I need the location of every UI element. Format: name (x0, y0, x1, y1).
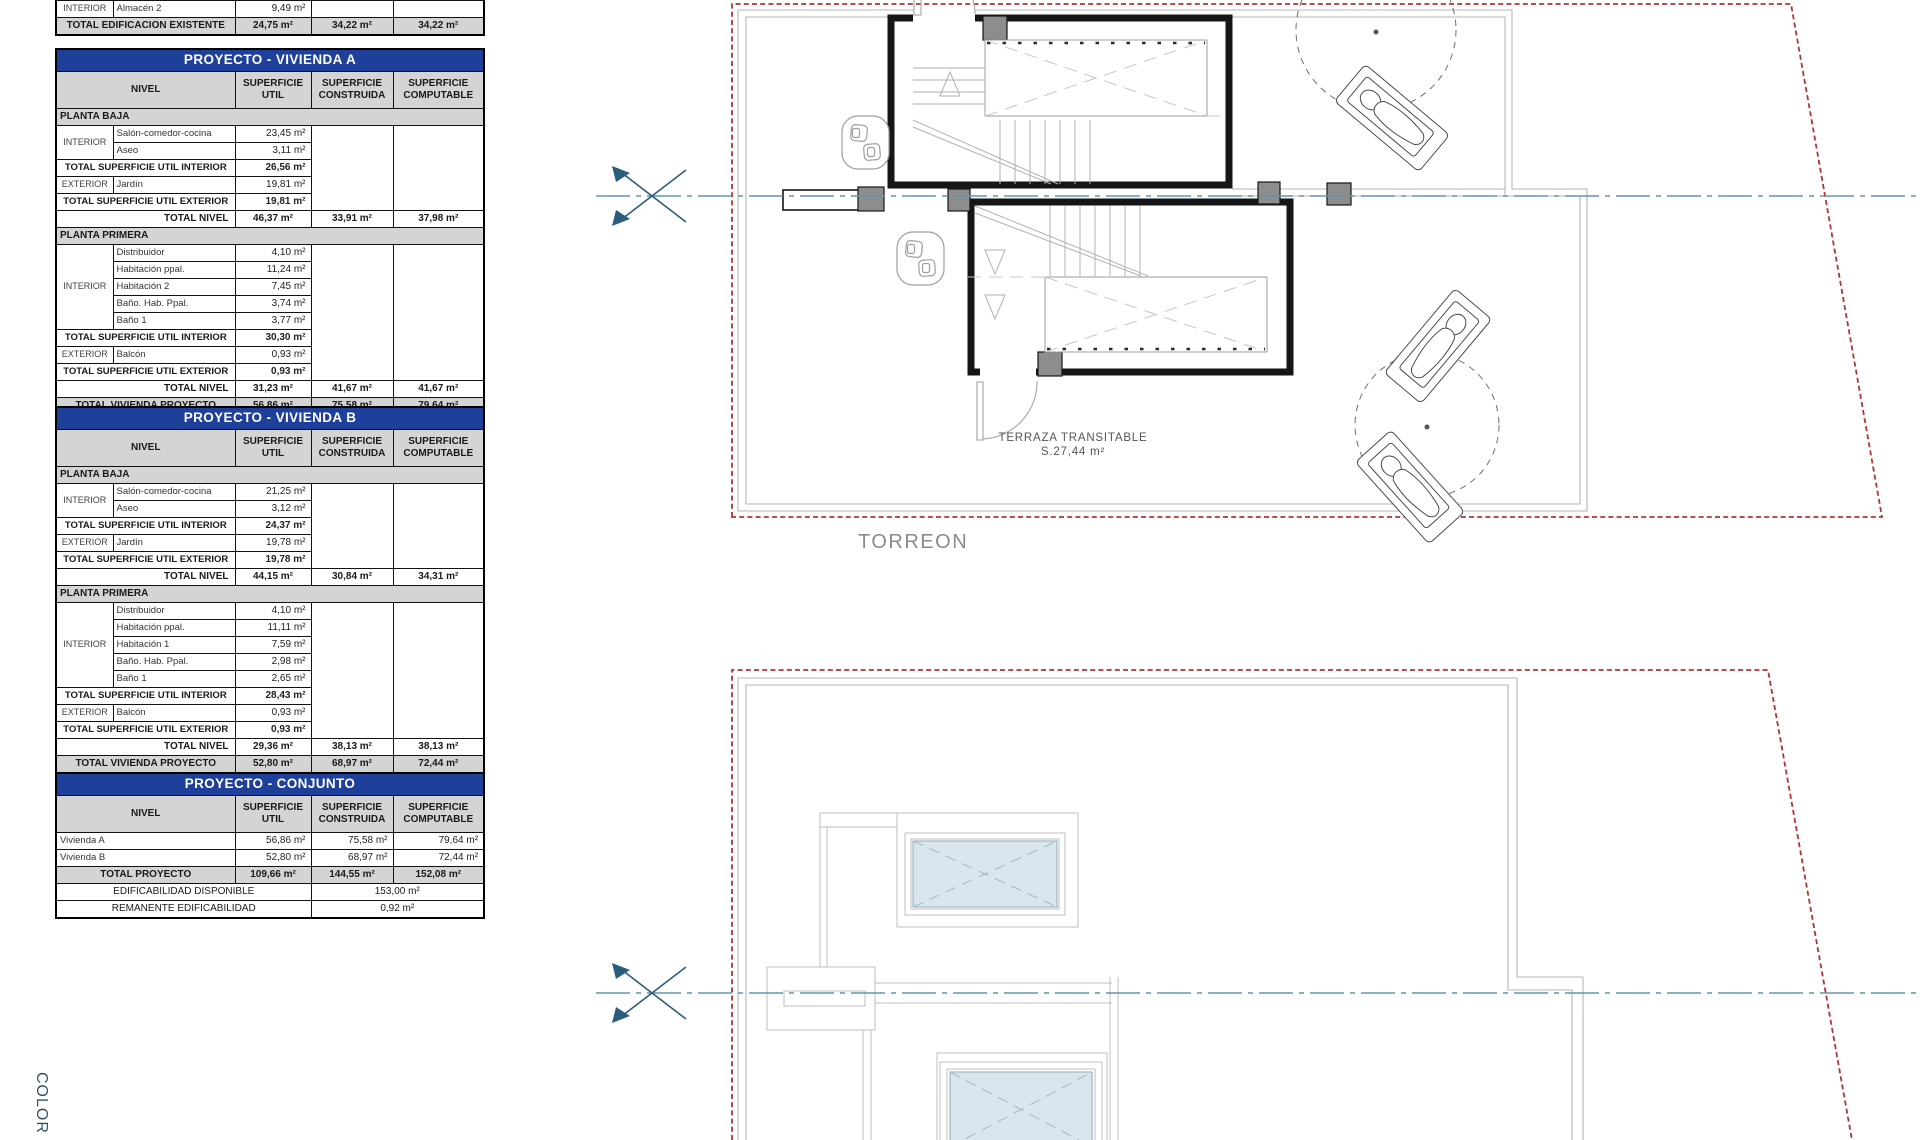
table-cell: INTERIOR (56, 1, 113, 18)
table-cell (393, 126, 484, 211)
table-cell: 30,30 m² (235, 330, 311, 347)
table-cell: TOTAL SUPERFICIE UTIL EXTERIOR (56, 194, 235, 211)
table-edificacion-existente: INTERIORAlmacén 29,49 m²TOTAL EDIFICACIO… (55, 0, 485, 36)
table-cell: Almacén 2 (113, 1, 235, 18)
terrace-label: TERRAZA TRANSITABLE (999, 432, 1148, 444)
roof-vent (842, 116, 889, 169)
pillar (858, 187, 884, 211)
table-row: INTERIORSalón-comedor-cocina23,45 m² (56, 126, 484, 143)
table-cell: 4,10 m² (235, 245, 311, 262)
terrace-border-outer (738, 678, 1583, 1140)
table-cell: NIVEL (56, 796, 235, 833)
table-cell: SUPERFICIE CONSTRUIDA (311, 430, 393, 467)
table-row: REMANENTE EDIFICABILIDAD0,92 m² (56, 901, 484, 919)
pillar (948, 189, 970, 211)
table-cell: 2,65 m² (235, 671, 311, 688)
table-cell (311, 245, 393, 381)
table-cell (311, 484, 393, 569)
margin-label: COLOR (32, 1072, 50, 1134)
table-row: INTERIORAlmacén 29,49 m² (56, 1, 484, 18)
table-cell: 152,08 m² (393, 867, 484, 884)
table-cell: Jardín (113, 535, 235, 552)
table-cell: 41,67 m² (393, 381, 484, 398)
table-cell: SUPERFICIE UTIL (235, 796, 311, 833)
table-cell: 24,37 m² (235, 518, 311, 535)
table-cell: 34,22 m² (311, 18, 393, 36)
table-row: NIVELSUPERFICIE UTILSUPERFICIE CONSTRUID… (56, 796, 484, 833)
table-cell: 11,24 m² (235, 262, 311, 279)
pillar (1327, 183, 1351, 205)
table-cell: Baño 1 (113, 313, 235, 330)
roof-vent (897, 232, 944, 285)
table-cell: SUPERFICIE UTIL (235, 430, 311, 467)
pillar (1258, 182, 1280, 204)
door-opening (980, 364, 1036, 380)
table-row: TOTAL NIVEL44,15 m²30,84 m²34,31 m² (56, 569, 484, 586)
table-proyecto-vivienda-b: PROYECTO - VIVIENDA BNIVELSUPERFICIE UTI… (55, 406, 485, 774)
table-cell (311, 603, 393, 739)
table-cell: 44,15 m² (235, 569, 311, 586)
table-cell: Distribuidor (113, 603, 235, 620)
table-row: EDIFICABILIDAD DISPONIBLE153,00 m² (56, 884, 484, 901)
table-cell: 144,55 m² (311, 867, 393, 884)
table-cell: SUPERFICIE CONSTRUIDA (311, 796, 393, 833)
table-cell: TOTAL SUPERFICIE UTIL EXTERIOR (56, 552, 235, 569)
table-row: TOTAL PROYECTO109,66 m²144,55 m²152,08 m… (56, 867, 484, 884)
table-cell: Habitación 1 (113, 637, 235, 654)
table-cell: PROYECTO - CONJUNTO (56, 773, 484, 796)
table-cell: 7,59 m² (235, 637, 311, 654)
door-opening (913, 8, 975, 24)
table-cell: 72,44 m² (393, 850, 484, 867)
table-cell: 0,92 m² (311, 901, 484, 919)
table-cell: Habitación 2 (113, 279, 235, 296)
table-cell: REMANENTE EDIFICABILIDAD (56, 901, 311, 919)
table-cell: 19,81 m² (235, 194, 311, 211)
sun-lounger (1334, 64, 1449, 171)
table-row: PLANTA BAJA (56, 467, 484, 484)
table-cell: INTERIOR (56, 484, 113, 518)
table-cell: 38,13 m² (393, 739, 484, 756)
table-cell: NIVEL (56, 430, 235, 467)
table-center-dot (1374, 30, 1379, 35)
table-cell: TOTAL NIVEL (56, 211, 235, 228)
table-cell: 33,91 m² (311, 211, 393, 228)
table-cell: 24,75 m² (235, 18, 311, 36)
table-cell: SUPERFICIE COMPUTABLE (393, 796, 484, 833)
table-cell: 72,44 m² (393, 756, 484, 774)
table-cell: Distribuidor (113, 245, 235, 262)
table-row: Vivienda B52,80 m²68,97 m²72,44 m² (56, 850, 484, 867)
table-cell: 3,12 m² (235, 501, 311, 518)
table-cell: 56,86 m² (235, 833, 311, 850)
table-cell: PLANTA PRIMERA (56, 586, 484, 603)
table-cell: 46,37 m² (235, 211, 311, 228)
table-row: PLANTA PRIMERA (56, 228, 484, 245)
table-cell: INTERIOR (56, 245, 113, 330)
table-cell: Balcón (113, 705, 235, 722)
table-cell: 34,22 m² (393, 18, 484, 36)
table-row: INTERIORDistribuidor4,10 m² (56, 245, 484, 262)
table-row: TOTAL EDIFICACION EXISTENTE24,75 m²34,22… (56, 18, 484, 36)
plot-boundary (732, 670, 1852, 1140)
table-cell: 0,93 m² (235, 364, 311, 381)
table-cell: 23,45 m² (235, 126, 311, 143)
table-proyecto-vivienda-a: PROYECTO - VIVIENDA ANIVELSUPERFICIE UTI… (55, 48, 485, 416)
table-cell: 37,98 m² (393, 211, 484, 228)
table-row: PLANTA BAJA (56, 109, 484, 126)
table-cell: SUPERFICIE COMPUTABLE (393, 72, 484, 109)
door-swing-arc (983, 381, 1037, 439)
table-cell: EDIFICABILIDAD DISPONIBLE (56, 884, 311, 901)
table-cell: 3,77 m² (235, 313, 311, 330)
plan-roof (732, 670, 1852, 1140)
table-row: PROYECTO - VIVIENDA A (56, 49, 484, 72)
table-cell (393, 484, 484, 569)
table-cell: 68,97 m² (311, 850, 393, 867)
table-cell: TOTAL VIVIENDA PROYECTO (56, 756, 235, 774)
table-cell: 4,10 m² (235, 603, 311, 620)
table-cell (393, 245, 484, 381)
skylight-hatch-a (985, 40, 1226, 116)
table-cell: Salón-comedor-cocina (113, 484, 235, 501)
table-cell: Habitación ppal. (113, 262, 235, 279)
table-cell: 28,43 m² (235, 688, 311, 705)
table-cell: Baño. Hab. Ppal. (113, 296, 235, 313)
table-cell: Vivienda B (56, 850, 235, 867)
table-cell: TOTAL EDIFICACION EXISTENTE (56, 18, 235, 36)
table-cell (311, 1, 393, 18)
table-cell: 109,66 m² (235, 867, 311, 884)
torreon-label: TORREON (858, 531, 968, 553)
table-cell: SUPERFICIE CONSTRUIDA (311, 72, 393, 109)
table-cell: TOTAL NIVEL (56, 739, 235, 756)
table-cell: Salón-comedor-cocina (113, 126, 235, 143)
table-cell: 41,67 m² (311, 381, 393, 398)
table-cell: TOTAL SUPERFICIE UTIL INTERIOR (56, 160, 235, 177)
table-cell: 52,80 m² (235, 850, 311, 867)
skylight-lower (937, 1053, 1107, 1140)
chimney (767, 967, 875, 1030)
table-cell (311, 126, 393, 211)
table-row: TOTAL NIVEL46,37 m²33,91 m²37,98 m² (56, 211, 484, 228)
sun-lounger (1384, 288, 1491, 403)
table-cell: 26,56 m² (235, 160, 311, 177)
terrace-furniture (1296, 0, 1499, 544)
drawing-sheet: TERRAZA TRANSITABLE S.27,44 m² TORREON (0, 0, 1920, 1140)
table-row: TOTAL NIVEL29,36 m²38,13 m²38,13 m² (56, 739, 484, 756)
table-cell: 153,00 m² (311, 884, 484, 901)
table-cell: EXTERIOR (56, 535, 113, 552)
table-cell: TOTAL SUPERFICIE UTIL EXTERIOR (56, 722, 235, 739)
table-cell: 34,31 m² (393, 569, 484, 586)
table-cell: TOTAL SUPERFICIE UTIL INTERIOR (56, 330, 235, 347)
table-cell: TOTAL NIVEL (56, 569, 235, 586)
skylight-upper (905, 833, 1065, 915)
table-cell: TOTAL SUPERFICIE UTIL EXTERIOR (56, 364, 235, 381)
table-cell: PROYECTO - VIVIENDA A (56, 49, 484, 72)
table-cell: SUPERFICIE UTIL (235, 72, 311, 109)
table-cell: 2,98 m² (235, 654, 311, 671)
table-cell: Balcón (113, 347, 235, 364)
table-cell: Aseo (113, 143, 235, 160)
table-cell: Aseo (113, 501, 235, 518)
table-cell: PLANTA BAJA (56, 467, 484, 484)
table-cell (393, 603, 484, 739)
table-row: TOTAL VIVIENDA PROYECTO52,80 m²68,97 m²7… (56, 756, 484, 774)
door-leaf (977, 382, 983, 440)
table-cell: PLANTA BAJA (56, 109, 484, 126)
table-cell: 3,11 m² (235, 143, 311, 160)
table-cell: 29,36 m² (235, 739, 311, 756)
table-cell: 31,23 m² (235, 381, 311, 398)
pillar (983, 16, 1007, 40)
table-cell: 21,25 m² (235, 484, 311, 501)
table-cell: 19,81 m² (235, 177, 311, 194)
table-row: PROYECTO - VIVIENDA B (56, 407, 484, 430)
table-cell: TOTAL PROYECTO (56, 867, 235, 884)
table-cell: Baño. Hab. Ppal. (113, 654, 235, 671)
table-cell: Jardín (113, 177, 235, 194)
terrace-border-inner (746, 685, 1572, 1140)
pillar (1038, 352, 1062, 376)
terrace-area-label: S.27,44 m² (1041, 446, 1105, 458)
table-cell (393, 1, 484, 18)
table-cell: 0,93 m² (235, 722, 311, 739)
table-cell: TOTAL SUPERFICIE UTIL INTERIOR (56, 518, 235, 535)
table-cell: 0,93 m² (235, 347, 311, 364)
table-cell: 68,97 m² (311, 756, 393, 774)
table-cell: 30,84 m² (311, 569, 393, 586)
table-cell: 7,45 m² (235, 279, 311, 296)
table-row: NIVELSUPERFICIE UTILSUPERFICIE CONSTRUID… (56, 72, 484, 109)
table-cell: Vivienda A (56, 833, 235, 850)
table-center-dot (1425, 425, 1430, 430)
plan-torreon: TERRAZA TRANSITABLE S.27,44 m² TORREON (732, 0, 1882, 553)
table-cell: NIVEL (56, 72, 235, 109)
table-row: INTERIORDistribuidor4,10 m² (56, 603, 484, 620)
table-cell: 75,58 m² (311, 833, 393, 850)
table-cell: 38,13 m² (311, 739, 393, 756)
table-row: PROYECTO - CONJUNTO (56, 773, 484, 796)
table-cell: 3,74 m² (235, 296, 311, 313)
sun-lounger (1355, 430, 1464, 544)
table-cell: 19,78 m² (235, 535, 311, 552)
table-cell: EXTERIOR (56, 705, 113, 722)
table-row: NIVELSUPERFICIE UTILSUPERFICIE CONSTRUID… (56, 430, 484, 467)
table-cell: 79,64 m² (393, 833, 484, 850)
table-cell: INTERIOR (56, 126, 113, 160)
table-cell: 9,49 m² (235, 1, 311, 18)
table-cell: INTERIOR (56, 603, 113, 688)
table-row: INTERIORSalón-comedor-cocina21,25 m² (56, 484, 484, 501)
table-cell: Baño 1 (113, 671, 235, 688)
table-cell: EXTERIOR (56, 347, 113, 364)
table-cell: 0,93 m² (235, 705, 311, 722)
table-cell: 11,11 m² (235, 620, 311, 637)
table-cell: 19,78 m² (235, 552, 311, 569)
table-cell: PROYECTO - VIVIENDA B (56, 407, 484, 430)
table-cell: EXTERIOR (56, 177, 113, 194)
table-row: PLANTA PRIMERA (56, 586, 484, 603)
table-cell: 52,80 m² (235, 756, 311, 774)
table-cell: SUPERFICIE COMPUTABLE (393, 430, 484, 467)
table-cell: PLANTA PRIMERA (56, 228, 484, 245)
table-proyecto-conjunto: PROYECTO - CONJUNTONIVELSUPERFICIE UTILS… (55, 772, 485, 919)
table-cell: TOTAL NIVEL (56, 381, 235, 398)
table-row: TOTAL NIVEL31,23 m²41,67 m²41,67 m² (56, 381, 484, 398)
table-cell: Habitación ppal. (113, 620, 235, 637)
table-cell: TOTAL SUPERFICIE UTIL INTERIOR (56, 688, 235, 705)
table-row: Vivienda A56,86 m²75,58 m²79,64 m² (56, 833, 484, 850)
